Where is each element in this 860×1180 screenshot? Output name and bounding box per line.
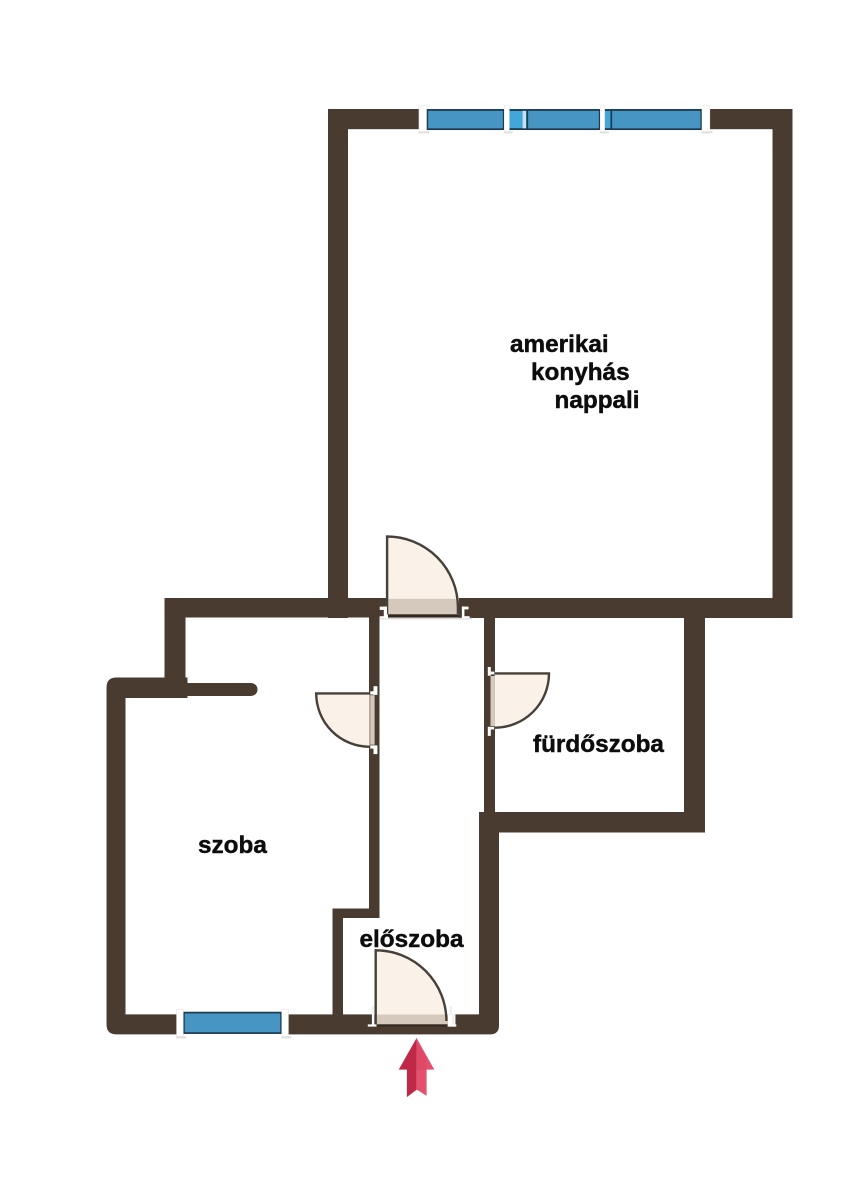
svg-text:amerikai: amerikai: [510, 331, 609, 358]
svg-text:konyhás: konyhás: [531, 359, 630, 386]
svg-text:szoba: szoba: [198, 832, 267, 859]
svg-text:fürdőszoba: fürdőszoba: [533, 731, 664, 758]
svg-text:nappali: nappali: [555, 387, 640, 414]
svg-text:előszoba: előszoba: [360, 926, 464, 953]
